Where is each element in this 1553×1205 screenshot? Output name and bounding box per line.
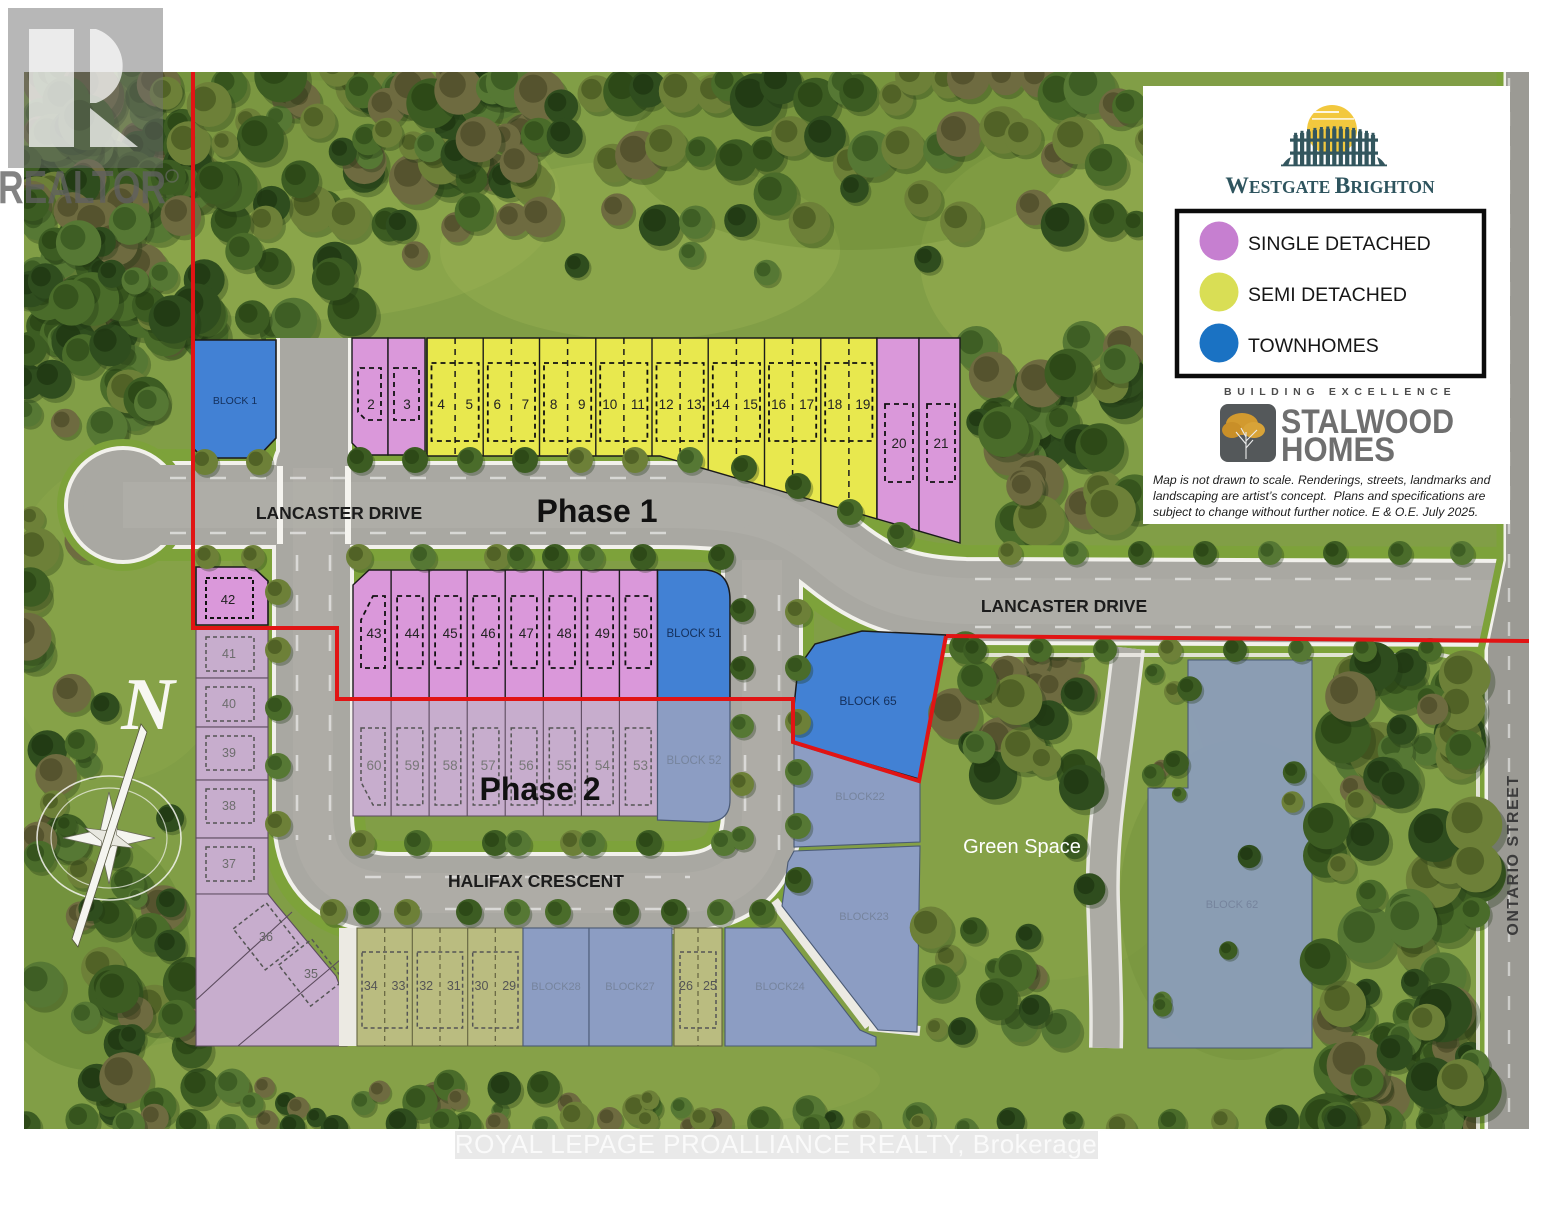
svg-text:37: 37 — [222, 857, 236, 871]
svg-text:7: 7 — [522, 397, 530, 412]
svg-text:14: 14 — [715, 397, 731, 412]
svg-text:13: 13 — [687, 397, 702, 412]
svg-text:34: 34 — [364, 979, 378, 993]
svg-text:10: 10 — [602, 397, 617, 412]
svg-text:ONTARIO STREET: ONTARIO STREET — [1505, 774, 1522, 935]
svg-text:BLOCK 65: BLOCK 65 — [839, 694, 897, 708]
svg-text:43: 43 — [366, 626, 381, 641]
svg-text:59: 59 — [405, 758, 420, 773]
svg-text:2: 2 — [367, 397, 375, 412]
svg-text:LANCASTER DRIVE: LANCASTER DRIVE — [256, 503, 422, 523]
svg-text:20: 20 — [891, 436, 906, 451]
svg-text:48: 48 — [557, 626, 572, 641]
svg-text:40: 40 — [222, 697, 236, 711]
svg-text:BLOCK 51: BLOCK 51 — [667, 628, 722, 640]
svg-text:41: 41 — [222, 647, 236, 661]
svg-text:Green Space: Green Space — [963, 836, 1081, 858]
svg-text:53: 53 — [633, 758, 648, 773]
svg-text:17: 17 — [799, 397, 814, 412]
svg-text:ROYAL LEPAGE PROALLIANCE REALT: ROYAL LEPAGE PROALLIANCE REALTY, Brokera… — [455, 1129, 1097, 1159]
svg-text:15: 15 — [743, 397, 758, 412]
svg-text:12: 12 — [659, 397, 674, 412]
svg-text:19: 19 — [855, 397, 870, 412]
svg-text:9: 9 — [578, 397, 586, 412]
svg-text:BLOCK23: BLOCK23 — [839, 911, 889, 923]
svg-text:30: 30 — [475, 979, 489, 993]
svg-text:21: 21 — [933, 436, 948, 451]
svg-text:3: 3 — [403, 397, 411, 412]
svg-text:SEMI DETACHED: SEMI DETACHED — [1248, 284, 1407, 306]
svg-text:Phase 1: Phase 1 — [537, 493, 658, 529]
svg-text:35: 35 — [304, 967, 318, 981]
svg-text:47: 47 — [519, 626, 534, 641]
svg-text:4: 4 — [437, 397, 445, 412]
svg-text:29: 29 — [502, 979, 516, 993]
svg-text:58: 58 — [443, 758, 458, 773]
svg-text:45: 45 — [443, 626, 458, 641]
svg-text:HALIFAX CRESCENT: HALIFAX CRESCENT — [448, 871, 624, 891]
svg-text:44: 44 — [405, 626, 421, 641]
svg-text:6: 6 — [494, 397, 502, 412]
svg-text:26: 26 — [679, 979, 693, 993]
svg-text:33: 33 — [392, 979, 406, 993]
svg-text:BLOCK 62: BLOCK 62 — [1206, 899, 1259, 911]
svg-text:B U I L D I N G E X C E L L: B U I L D I N G E X C E L L E N C E — [1224, 386, 1452, 398]
svg-text:SINGLE DETACHED: SINGLE DETACHED — [1248, 233, 1431, 255]
svg-text:25: 25 — [703, 979, 717, 993]
svg-text:38: 38 — [222, 799, 236, 813]
svg-text:BLOCK 52: BLOCK 52 — [667, 755, 722, 767]
svg-text:46: 46 — [481, 626, 496, 641]
svg-text:31: 31 — [447, 979, 461, 993]
svg-text:BLOCK 1: BLOCK 1 — [213, 395, 258, 407]
svg-text:N: N — [120, 664, 177, 746]
svg-text:BLOCK28: BLOCK28 — [531, 981, 581, 993]
svg-text:subject to change without furt: subject to change without further notice… — [1153, 505, 1478, 519]
svg-text:32: 32 — [419, 979, 433, 993]
svg-text:Phase 2: Phase 2 — [480, 771, 601, 807]
svg-text:BLOCK24: BLOCK24 — [755, 981, 805, 993]
svg-text:BLOCK27: BLOCK27 — [605, 981, 655, 993]
svg-text:49: 49 — [595, 626, 610, 641]
svg-text:18: 18 — [827, 397, 842, 412]
svg-text:50: 50 — [633, 626, 648, 641]
svg-text:16: 16 — [771, 397, 786, 412]
svg-text:REALTOR: REALTOR — [0, 161, 166, 213]
svg-text:60: 60 — [366, 758, 381, 773]
svg-text:Map is not drawn to scale. Ren: Map is not drawn to scale. Renderings, s… — [1153, 473, 1492, 487]
svg-text:11: 11 — [631, 397, 645, 412]
svg-text:42: 42 — [221, 592, 235, 607]
svg-text:WESTGATE BRIGHTON: WESTGATE BRIGHTON — [1225, 173, 1435, 199]
svg-text:LANCASTER DRIVE: LANCASTER DRIVE — [981, 596, 1147, 616]
svg-text:landscaping are artist’s conce: landscaping are artist’s concept. Plans … — [1153, 489, 1486, 503]
svg-text:8: 8 — [550, 397, 558, 412]
svg-text:5: 5 — [465, 397, 473, 412]
svg-text:HOMES: HOMES — [1281, 431, 1395, 469]
svg-text:BLOCK22: BLOCK22 — [835, 791, 885, 803]
svg-text:TOWNHOMES: TOWNHOMES — [1248, 335, 1379, 357]
svg-text:39: 39 — [222, 746, 236, 760]
svg-text:36: 36 — [259, 930, 273, 944]
